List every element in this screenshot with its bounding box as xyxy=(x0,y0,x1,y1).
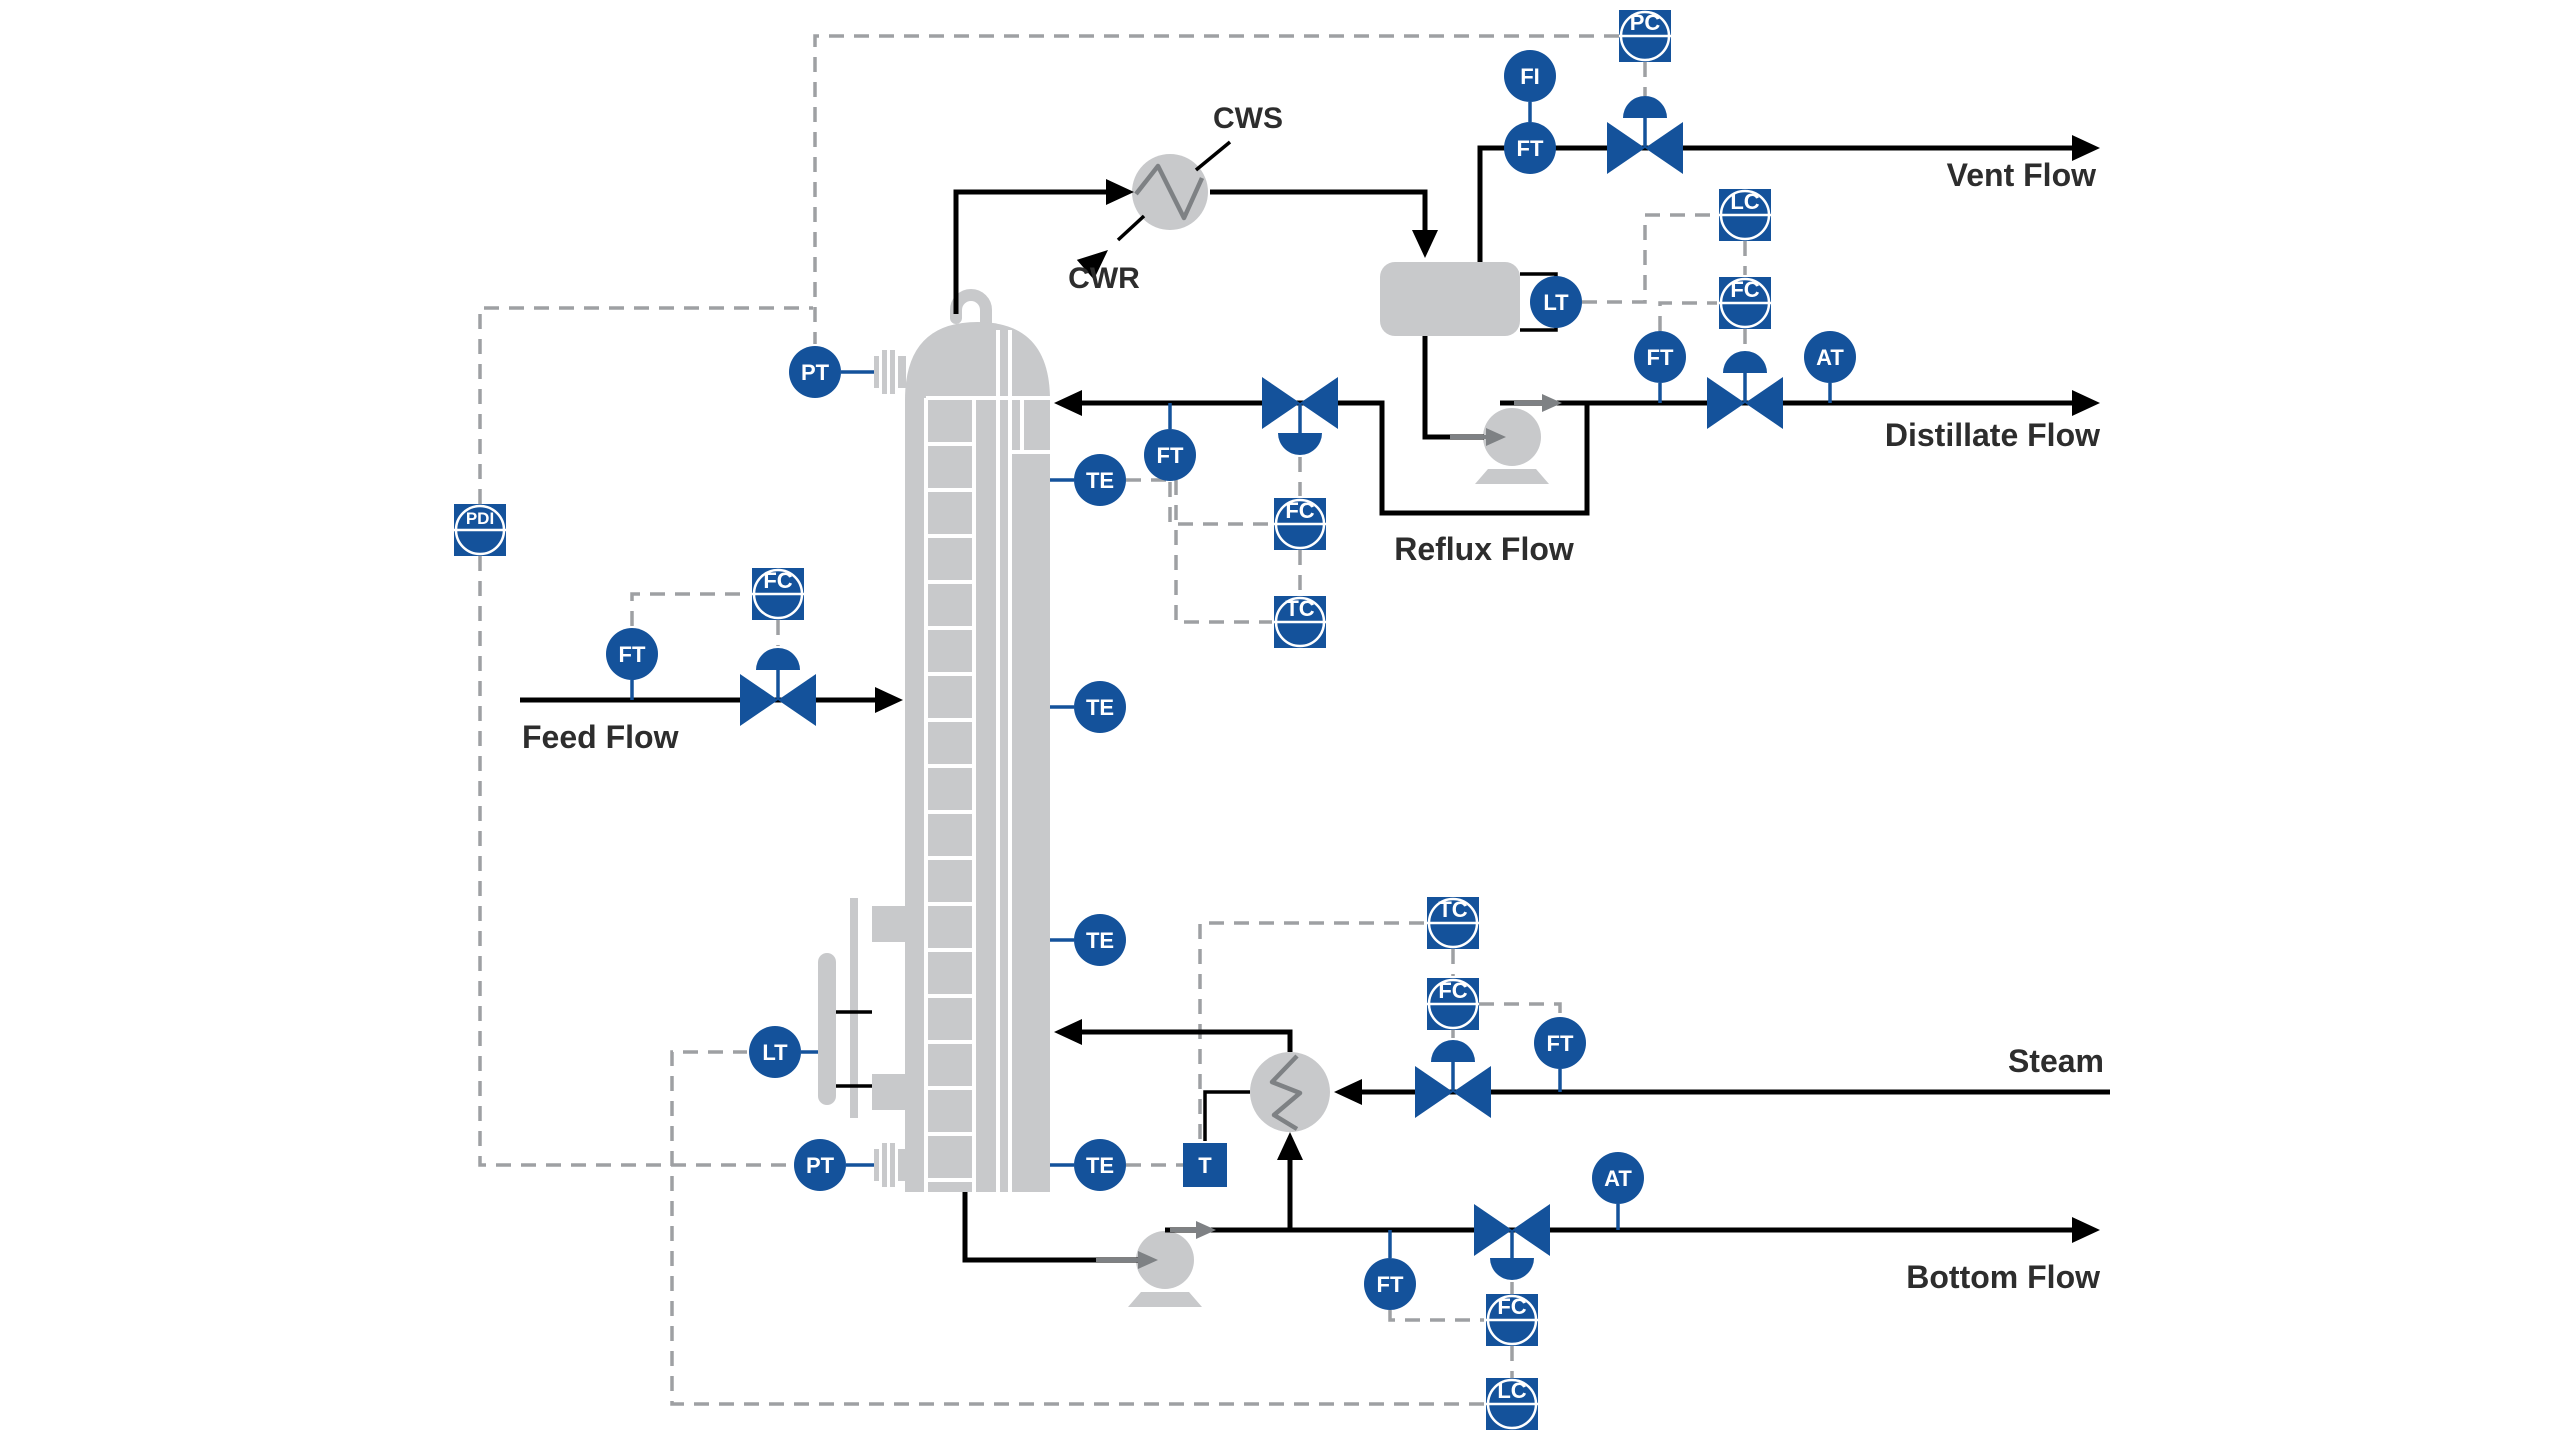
reboiler-return-line xyxy=(1062,1032,1290,1052)
pt-top-nozzle xyxy=(874,350,906,394)
signal-ft-feed-to-fc xyxy=(632,594,750,626)
pdi-column-indicator: PDI xyxy=(454,504,506,556)
ft-bottom-transmitter: FT xyxy=(1364,1258,1416,1310)
steam-label: Steam xyxy=(2008,1043,2104,1079)
valve-actuator-icon xyxy=(756,648,800,670)
fc-bottom-controller: FC xyxy=(1486,1294,1538,1346)
instrument-tag: LC xyxy=(1730,189,1759,214)
into-reboiler-arrow xyxy=(1277,1132,1303,1160)
bridle-nozzle-lower xyxy=(872,1074,905,1110)
valve-actuator-icon xyxy=(1723,351,1767,373)
instrument-tag: PT xyxy=(806,1153,835,1178)
flange-bar xyxy=(882,350,887,394)
te-bottom-element: TE xyxy=(1074,1139,1126,1191)
instrument-tag: PT xyxy=(801,360,830,385)
pc-vent-controller: PC xyxy=(1619,10,1671,62)
flange-bar xyxy=(890,1143,895,1187)
condenser-outlet-line xyxy=(1210,192,1425,246)
valve-actuator-icon xyxy=(1278,433,1322,455)
reflux-drum xyxy=(1380,262,1520,336)
instrument-tag: FC xyxy=(1497,1294,1526,1319)
cws-line xyxy=(1196,142,1230,170)
reboiler xyxy=(1250,1052,1330,1132)
bottom-flow-arrow xyxy=(2072,1217,2100,1243)
bottoms-outlet-line xyxy=(965,1192,1138,1260)
instrument-tag: FT xyxy=(1377,1272,1404,1297)
fc-reflux-controller: FC xyxy=(1274,498,1326,550)
lc-distillate-controller: LC xyxy=(1719,189,1771,241)
instrument-tag: PC xyxy=(1630,10,1661,35)
valve-actuator-icon xyxy=(1490,1258,1534,1280)
bottom-flow-control-valve xyxy=(1474,1204,1550,1280)
at-bottom-analyzer: AT xyxy=(1592,1152,1644,1204)
feed-flow-label: Feed Flow xyxy=(522,719,679,755)
reflux-into-column-arrow xyxy=(1054,390,1082,416)
distillate-flow-arrow xyxy=(2072,390,2100,416)
signal-ft-distillate-to-fc xyxy=(1660,303,1717,331)
instrument-tag: LC xyxy=(1497,1378,1526,1403)
tc-steam-controller: TC xyxy=(1427,897,1479,949)
pump-discharge-arrow xyxy=(1542,394,1562,412)
fc-steam-controller: FC xyxy=(1427,978,1479,1030)
instrument-tag: AT xyxy=(1604,1166,1632,1191)
diagram-canvas: FI FT LT FT AT PT TE FT xyxy=(0,0,2560,1440)
instrument-tag: TE xyxy=(1086,468,1114,493)
instrument-tag: FT xyxy=(1547,1031,1574,1056)
lc-bottom-controller: LC xyxy=(1486,1378,1538,1430)
cwr-line xyxy=(1118,216,1144,240)
fi-vent-indicator: FI xyxy=(1504,50,1556,102)
level-bridle-assembly xyxy=(818,898,905,1118)
lt-bottom-transmitter: LT xyxy=(749,1026,801,1078)
vent-control-valve xyxy=(1607,96,1683,174)
ft-vent-transmitter: FT xyxy=(1504,122,1556,174)
distillate-flow-label: Distillate Flow xyxy=(1885,417,2100,453)
instrument-tag: T xyxy=(1198,1153,1212,1178)
te-upper-mid-element: TE xyxy=(1074,681,1126,733)
instrument-tag: TE xyxy=(1086,928,1114,953)
arrowhead xyxy=(1106,179,1134,205)
pump-discharge-arrow xyxy=(1196,1221,1216,1239)
reflux-control-valve xyxy=(1262,377,1338,455)
signal-ft-bottom-to-fc xyxy=(1390,1310,1484,1320)
bridle-nozzle-upper xyxy=(872,906,905,942)
instrument-tag: TE xyxy=(1086,1153,1114,1178)
bridle-gauge-body xyxy=(818,953,836,1105)
instrument-tag: LT xyxy=(1543,290,1569,315)
ft-steam-transmitter: FT xyxy=(1534,1017,1586,1069)
ft-feed-transmitter: FT xyxy=(606,628,658,680)
ft-reflux-transmitter: FT xyxy=(1144,429,1196,481)
fc-feed-controller: FC xyxy=(752,568,804,620)
fc-distillate-controller: FC xyxy=(1719,277,1771,329)
instrument-tag: FT xyxy=(619,642,646,667)
signal-fc-steam-to-ft xyxy=(1479,1004,1560,1015)
condensate-trap-line xyxy=(1205,1092,1250,1141)
instrument-tag: TE xyxy=(1086,695,1114,720)
bottoms-pump xyxy=(1128,1231,1202,1307)
flange-bar xyxy=(890,350,895,394)
steam-trap: T xyxy=(1183,1143,1227,1187)
bottom-flow-label: Bottom Flow xyxy=(1906,1259,2100,1295)
tc-reflux-controller: TC xyxy=(1274,596,1326,648)
distillate-control-valve xyxy=(1707,351,1783,429)
cws-label: CWS xyxy=(1213,102,1283,135)
feed-control-valve xyxy=(740,648,816,726)
pt-bottom-transmitter: PT xyxy=(794,1139,846,1191)
signal-lt-drum-to-lc xyxy=(1582,215,1717,302)
pt-bottom-nozzle xyxy=(874,1143,906,1187)
arrowhead xyxy=(1412,230,1438,258)
drum-outlet-line xyxy=(1425,336,1484,437)
pump-base xyxy=(1475,469,1549,484)
flange-bar xyxy=(874,1149,879,1181)
steam-control-valve xyxy=(1415,1040,1491,1118)
reflux-flow-label: Reflux Flow xyxy=(1394,531,1574,567)
instrument-tag: TC xyxy=(1285,596,1314,621)
instrument-tag: FT xyxy=(1157,443,1184,468)
signal-ft-reflux-to-fc xyxy=(1170,482,1272,524)
vent-flow-label: Vent Flow xyxy=(1947,157,2096,193)
ft-distillate-transmitter: FT xyxy=(1634,331,1686,383)
valve-actuator-icon xyxy=(1623,96,1667,118)
flange-bar xyxy=(874,356,879,388)
pump-flow-arrows xyxy=(1096,394,1562,1269)
flange-bar xyxy=(898,356,906,388)
instrument-circles: FI FT LT FT AT PT TE FT xyxy=(606,50,1856,1310)
instrument-tag: FC xyxy=(763,568,792,593)
steam-into-reboiler-arrow xyxy=(1334,1079,1362,1105)
pt-top-transmitter: PT xyxy=(789,346,841,398)
instrument-tag: FC xyxy=(1285,498,1314,523)
instrument-tag: AT xyxy=(1816,345,1844,370)
instrument-tag: PDI xyxy=(466,509,494,528)
cwr-label: CWR xyxy=(1068,262,1140,295)
instrument-tag: FC xyxy=(1438,978,1467,1003)
pump-base xyxy=(1128,1292,1202,1307)
lt-drum-transmitter: LT xyxy=(1530,276,1582,328)
reflux-pump xyxy=(1475,408,1549,484)
vapor-into-column-arrow xyxy=(1054,1019,1082,1045)
signal-te-top-to-tc-reflux xyxy=(1126,480,1272,622)
pid-distillation-diagram: FI FT LT FT AT PT TE FT xyxy=(0,0,2560,1440)
equipment xyxy=(818,154,1549,1307)
signal-pdi-top-tap xyxy=(480,308,813,504)
flange-bar xyxy=(882,1143,887,1187)
at-distillate-analyzer: AT xyxy=(1804,331,1856,383)
instrument-tag: FI xyxy=(1520,64,1540,89)
te-top-element: TE xyxy=(1074,454,1126,506)
valve-actuator-icon xyxy=(1431,1040,1475,1062)
te-lower-mid-element: TE xyxy=(1074,914,1126,966)
flange-bar xyxy=(898,1149,906,1181)
instrument-tag: TC xyxy=(1438,897,1467,922)
instrument-tag: FT xyxy=(1647,345,1674,370)
instrument-tag: LT xyxy=(762,1040,788,1065)
instrument-tag: FC xyxy=(1730,277,1759,302)
feed-into-column-arrow xyxy=(875,687,903,713)
instrument-tag: FT xyxy=(1517,136,1544,161)
